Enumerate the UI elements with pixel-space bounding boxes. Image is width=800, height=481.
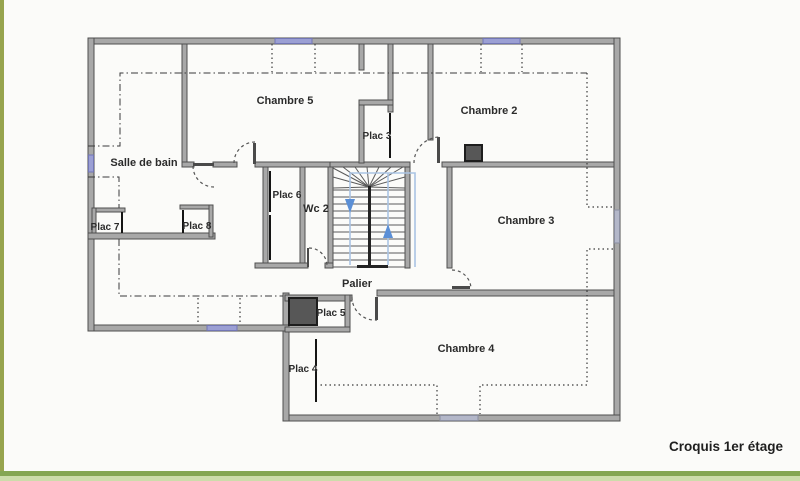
window-icon xyxy=(483,39,520,44)
stair-winder-fan xyxy=(333,167,405,188)
chimney-icon xyxy=(289,298,317,325)
door-chambre5 xyxy=(234,142,256,164)
stair-up-arrow-icon xyxy=(383,224,393,238)
window-icon xyxy=(89,155,94,172)
room-label-wc2: Wc 2 xyxy=(303,203,329,215)
walls xyxy=(88,38,620,421)
staircase xyxy=(333,167,415,268)
room-label-chambre5: Chambre 5 xyxy=(257,95,314,107)
window-icon xyxy=(275,39,312,44)
room-label-chambre4: Chambre 4 xyxy=(438,343,496,355)
door-chambre4 xyxy=(352,297,378,320)
window-icon xyxy=(615,210,620,243)
floor-plan-canvas: Salle de bain Chambre 5 Chambre 2 Chambr… xyxy=(0,0,800,481)
room-label-plac4: Plac 4 xyxy=(289,364,318,375)
stair-bottom-edge xyxy=(357,265,388,268)
room-label-plac5: Plac 5 xyxy=(317,308,346,319)
door-chambre3 xyxy=(452,270,471,289)
floor-plan-drawing: Salle de bain Chambre 5 Chambre 2 Chambr… xyxy=(0,0,800,481)
stair-stringer xyxy=(368,186,371,268)
room-label-chambre2: Chambre 2 xyxy=(461,105,518,117)
window-icon xyxy=(440,416,478,421)
door-wc2 xyxy=(307,248,327,267)
door-chambre2 xyxy=(414,137,440,163)
drawing-caption: Croquis 1er étage xyxy=(669,439,784,454)
room-label-plac7: Plac 7 xyxy=(91,222,120,233)
chimney-icon xyxy=(465,145,482,161)
window-icon xyxy=(207,326,237,331)
room-label-salle-de-bain: Salle de bain xyxy=(110,157,178,169)
room-label-chambre3: Chambre 3 xyxy=(498,215,555,227)
door-salle-de-bain xyxy=(193,163,214,187)
windows xyxy=(89,39,620,421)
room-label-plac8: Plac 8 xyxy=(183,221,212,232)
room-label-palier: Palier xyxy=(342,278,373,290)
room-label-plac6: Plac 6 xyxy=(273,190,302,201)
room-label-plac3: Plac 3 xyxy=(363,131,392,142)
